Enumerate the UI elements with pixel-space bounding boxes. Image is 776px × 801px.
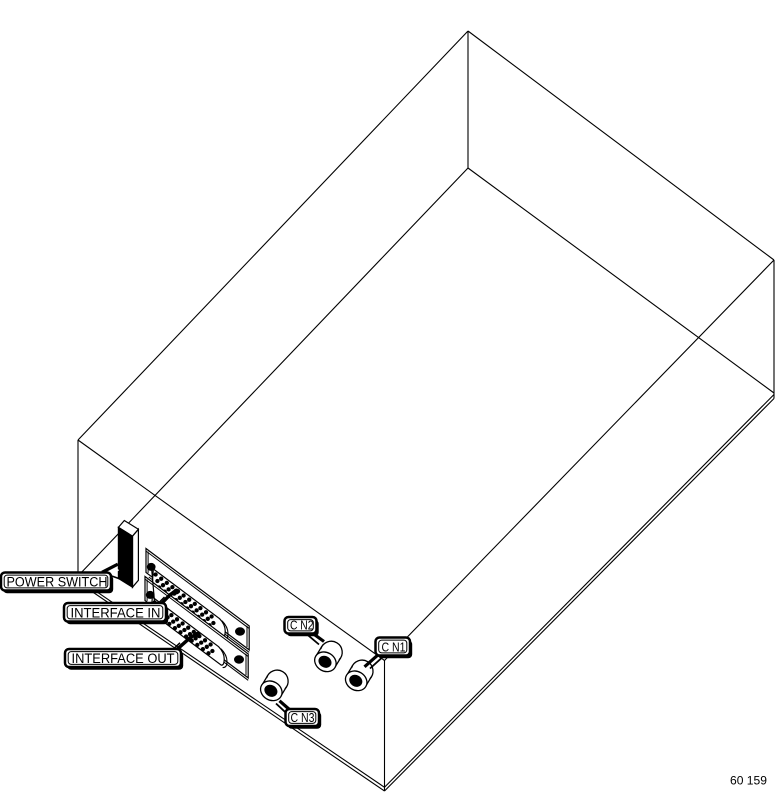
svg-text:INTERFACE OUT: INTERFACE OUT [72, 651, 175, 666]
svg-text:60 159: 60 159 [730, 776, 767, 788]
svg-text:INTERFACE IN: INTERFACE IN [71, 605, 161, 620]
svg-text:C N1: C N1 [382, 639, 406, 654]
svg-text:POWER SWITCH: POWER SWITCH [7, 574, 108, 589]
svg-text:C N3: C N3 [291, 710, 315, 725]
svg-text:C N2: C N2 [290, 617, 314, 632]
